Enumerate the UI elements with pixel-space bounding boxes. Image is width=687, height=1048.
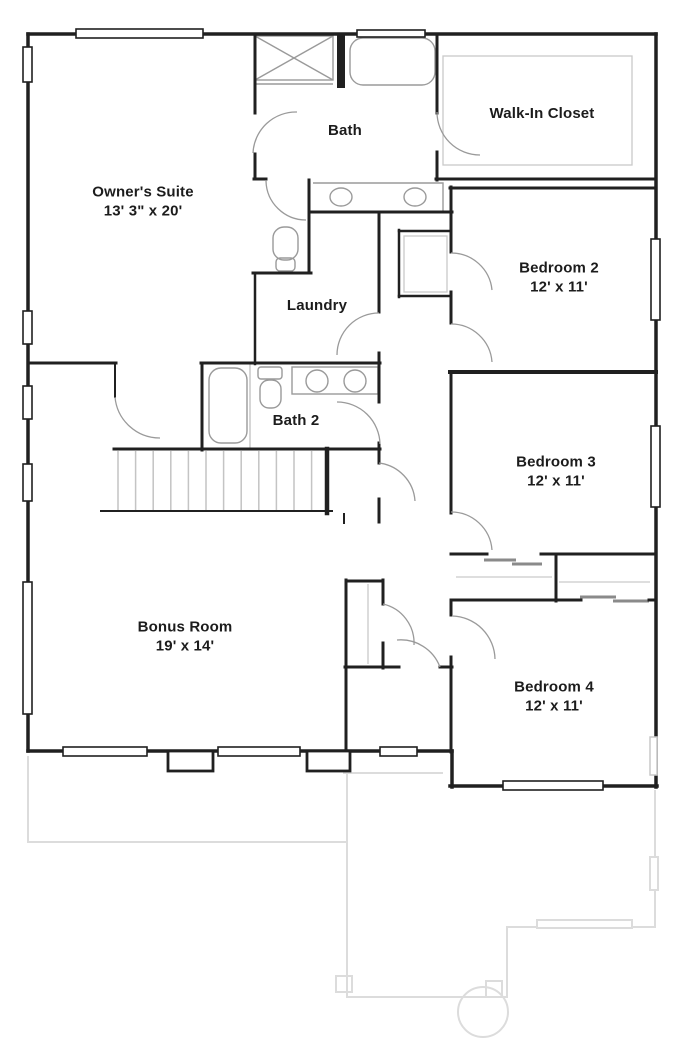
door-arc-bedroom2 [451, 324, 492, 362]
room-dims: 19' x 14' [138, 637, 233, 656]
windows [23, 29, 660, 790]
room-label-bedroom-3: Bedroom 3 12' x 11' [516, 454, 596, 491]
closet-shelving [368, 56, 650, 664]
toilet2-fixture [258, 367, 282, 408]
window [23, 386, 32, 419]
window [357, 30, 425, 37]
window [651, 426, 660, 507]
lower-level-post [336, 976, 352, 992]
window [63, 747, 147, 756]
bay-post [307, 751, 350, 771]
window [23, 582, 32, 714]
bedroom2-closet-shelf [404, 236, 447, 292]
lower-level-window [650, 857, 658, 890]
window [218, 747, 300, 756]
lower-level-column [458, 987, 508, 1037]
walls [28, 33, 657, 787]
room-name: Bath 2 [273, 412, 320, 431]
room-label-laundry: Laundry [287, 297, 347, 316]
window [23, 47, 32, 82]
room-label-bedroom-4: Bedroom 4 12' x 11' [514, 679, 594, 716]
shower-tub-partition [337, 33, 345, 88]
bathtub-fixture [350, 38, 435, 85]
room-dims: 13' 3" x 20' [92, 202, 193, 221]
room-label-bonus-room: Bonus Room 19' x 14' [138, 619, 233, 656]
sliding-closet-doors [484, 560, 649, 601]
stair-treads [118, 451, 312, 510]
room-label-walk-in-closet: Walk-In Closet [490, 105, 595, 124]
window [380, 747, 417, 756]
bathtub2-fixture [209, 364, 250, 449]
room-label-bath-2: Bath 2 [273, 412, 320, 431]
room-label-bath: Bath [328, 122, 362, 141]
window [650, 737, 657, 775]
door-arc-landing [379, 463, 415, 501]
faded-lower-level-outline [28, 756, 658, 1037]
door-arc-laundry [337, 313, 379, 355]
room-label-bedroom-2: Bedroom 2 12' x 11' [519, 260, 599, 297]
room-name: Bath [328, 122, 362, 141]
window [503, 781, 603, 790]
door-arc-bath [253, 112, 297, 153]
window [23, 311, 32, 344]
fixtures [209, 36, 443, 449]
door-arc-bedroom2-closet [451, 253, 492, 290]
window [76, 29, 203, 38]
door-arc-bedroom3 [451, 512, 492, 550]
vanity2-fixture [292, 367, 378, 394]
room-name: Owner's Suite [92, 184, 193, 203]
window [23, 464, 32, 501]
floorplan-drawing [0, 0, 687, 1048]
door-arc-owners-suite [115, 397, 160, 438]
room-name: Bedroom 3 [516, 454, 596, 473]
lower-level-window [537, 920, 632, 928]
room-name: Bedroom 2 [519, 260, 599, 279]
door-arc-bath2 [337, 402, 380, 444]
door-arc-hall-closet [383, 604, 414, 645]
room-name: Laundry [287, 297, 347, 316]
shower-fixture [255, 36, 333, 84]
door-arc-bonus-room [397, 640, 440, 667]
window [651, 239, 660, 320]
room-dims: 12' x 11' [519, 278, 599, 297]
room-name: Bonus Room [138, 619, 233, 638]
floorplan-canvas: Owner's Suite 13' 3" x 20' Bath Walk-In … [0, 0, 687, 1048]
room-name: Bedroom 4 [514, 679, 594, 698]
room-dims: 12' x 11' [514, 697, 594, 716]
bay-post [168, 751, 213, 771]
room-dims: 12' x 11' [516, 472, 596, 491]
toilet-fixture [273, 227, 298, 271]
room-label-owners-suite: Owner's Suite 13' 3" x 20' [92, 184, 193, 221]
door-arc-bedroom4 [452, 616, 495, 659]
exterior-walls [28, 34, 657, 787]
door-arc-water-closet [266, 181, 306, 220]
lower-level-footprint [347, 756, 655, 997]
staircase [100, 451, 344, 524]
double-vanity-fixture [313, 183, 443, 212]
room-name: Walk-In Closet [490, 105, 595, 124]
